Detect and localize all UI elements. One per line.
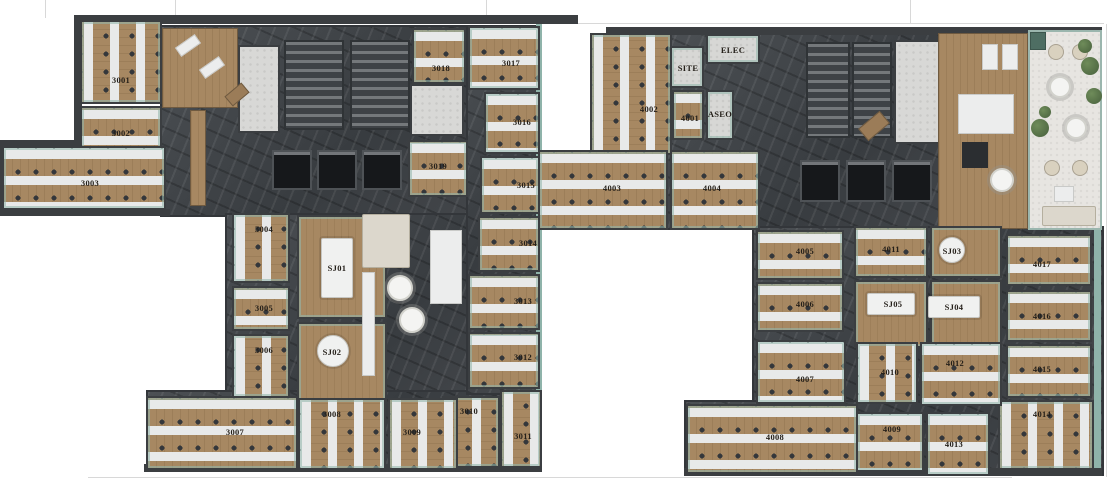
lounge-chair (1072, 160, 1088, 176)
room-label: 4017 (1033, 260, 1051, 269)
lounge-chair (1044, 160, 1060, 176)
round-table (990, 168, 1014, 192)
room-label: 4001 (681, 114, 699, 123)
round-table (1065, 117, 1087, 139)
room-label: 4010 (881, 368, 899, 377)
room-label: 4015 (1033, 365, 1051, 374)
room-label: 4016 (1033, 312, 1051, 321)
plant (1078, 39, 1092, 53)
room-label: SJ04 (945, 303, 964, 312)
room-label: 4011 (882, 245, 900, 254)
room-label: 4005 (796, 247, 814, 256)
room-label: ASEO (708, 110, 732, 119)
room-label: 4009 (883, 425, 901, 434)
room-4009 (856, 412, 924, 472)
room-label: 4006 (796, 300, 814, 309)
room-label: SITE (678, 64, 699, 73)
plant (1039, 106, 1051, 118)
room-label: 4014 (1033, 410, 1051, 419)
furniture-counter (1054, 186, 1074, 202)
room-label: 4004 (703, 184, 721, 193)
restroom-area (894, 40, 940, 144)
room-label: 4003 (603, 184, 621, 193)
floor-plan-4: 4002SITEELEC4001ASEO40034004400540064011… (0, 0, 1108, 480)
floorplan-canvas: 300130023003300430053006SJ01SJ0230193018… (0, 0, 1108, 480)
furniture-seat (962, 142, 988, 168)
plant (1081, 57, 1099, 75)
furniture-counter (1002, 44, 1018, 70)
elevator-shaft (892, 160, 932, 202)
room-label: SJ03 (943, 247, 962, 256)
room-label: 4013 (945, 440, 963, 449)
elevator-shaft (846, 160, 886, 202)
room-4002 (590, 33, 672, 155)
room-label: 4008 (766, 433, 784, 442)
lounge-chair (1048, 44, 1064, 60)
room-label: 4007 (796, 375, 814, 384)
room-label: 4002 (640, 105, 658, 114)
plant (1031, 119, 1049, 137)
wall-accent (1094, 228, 1101, 472)
room-4012 (920, 342, 1002, 406)
room-label: SJ05 (884, 300, 903, 309)
stair-well (806, 42, 850, 138)
room-4007 (756, 340, 846, 404)
round-table (1049, 76, 1071, 98)
furniture-counter (982, 44, 998, 70)
furniture-counter (958, 94, 1014, 134)
planter-box (1030, 32, 1046, 50)
elevator-shaft (800, 160, 840, 202)
furniture-sofa (1042, 206, 1096, 226)
plant (1086, 88, 1102, 104)
room-label: 4012 (946, 359, 964, 368)
room-label: ELEC (721, 46, 745, 55)
